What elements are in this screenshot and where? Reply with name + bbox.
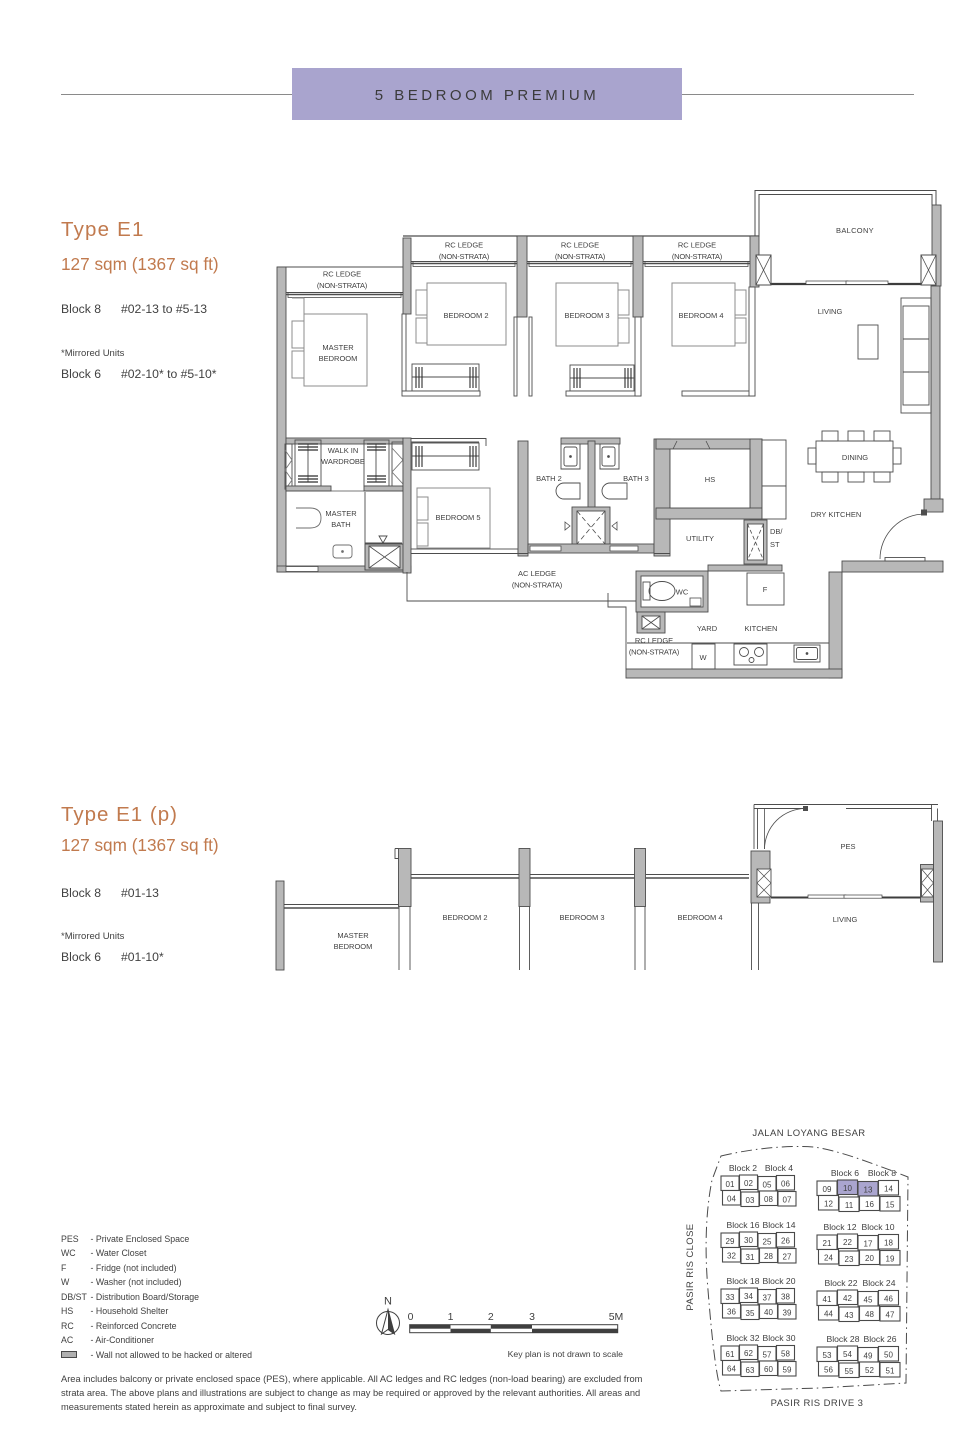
- svg-text:WC: WC: [676, 588, 689, 597]
- svg-text:02: 02: [744, 1179, 753, 1188]
- svg-text:28: 28: [764, 1252, 773, 1261]
- svg-text:RC LEDGE: RC LEDGE: [561, 241, 599, 250]
- svg-text:16: 16: [865, 1200, 874, 1209]
- svg-text:58: 58: [781, 1350, 790, 1359]
- svg-text:47: 47: [886, 1311, 895, 1320]
- svg-text:(NON-STRATA): (NON-STRATA): [512, 581, 563, 590]
- svg-text:52: 52: [865, 1366, 874, 1375]
- svg-text:RC LEDGE: RC LEDGE: [445, 241, 483, 250]
- svg-text:MASTER: MASTER: [322, 343, 354, 352]
- svg-text:01: 01: [726, 1180, 735, 1189]
- svg-text:31: 31: [746, 1253, 755, 1262]
- svg-text:61: 61: [726, 1350, 735, 1359]
- svg-text:Block 6: Block 6: [831, 1168, 859, 1178]
- svg-text:10: 10: [843, 1184, 852, 1193]
- svg-text:22: 22: [843, 1238, 852, 1247]
- svg-text:37: 37: [763, 1294, 772, 1303]
- svg-text:5M: 5M: [609, 1311, 624, 1323]
- svg-text:20: 20: [865, 1254, 874, 1263]
- svg-text:04: 04: [727, 1195, 736, 1204]
- svg-text:49: 49: [864, 1352, 873, 1361]
- svg-text:0: 0: [408, 1311, 414, 1323]
- svg-text:Block 28: Block 28: [827, 1334, 860, 1344]
- svg-text:2: 2: [488, 1311, 494, 1323]
- svg-text:(NON-STRATA): (NON-STRATA): [629, 648, 680, 657]
- svg-text:46: 46: [884, 1295, 893, 1304]
- svg-text:59: 59: [783, 1366, 792, 1375]
- svg-text:15: 15: [886, 1201, 895, 1210]
- svg-text:PES: PES: [840, 842, 855, 851]
- svg-text:BEDROOM 4: BEDROOM 4: [678, 311, 723, 320]
- svg-text:MASTER: MASTER: [337, 931, 369, 940]
- svg-text:DB/: DB/: [770, 527, 783, 536]
- svg-text:PASIR RIS DRIVE 3: PASIR RIS DRIVE 3: [771, 1398, 864, 1409]
- svg-text:56: 56: [824, 1366, 833, 1375]
- svg-text:05: 05: [763, 1181, 772, 1190]
- svg-text:57: 57: [763, 1351, 772, 1360]
- svg-text:63: 63: [746, 1366, 755, 1375]
- svg-text:42: 42: [843, 1294, 852, 1303]
- svg-text:51: 51: [886, 1367, 895, 1376]
- svg-text:AC LEDGE: AC LEDGE: [518, 569, 556, 578]
- svg-text:BEDROOM 4: BEDROOM 4: [677, 913, 722, 922]
- svg-text:1: 1: [448, 1311, 454, 1323]
- svg-text:55: 55: [845, 1367, 854, 1376]
- svg-text:(NON-STRATA): (NON-STRATA): [439, 252, 490, 261]
- svg-text:08: 08: [764, 1195, 773, 1204]
- svg-text:YARD: YARD: [697, 624, 718, 633]
- svg-text:JALAN LOYANG BESAR: JALAN LOYANG BESAR: [752, 1128, 865, 1139]
- svg-text:43: 43: [845, 1311, 854, 1320]
- svg-text:RC LEDGE: RC LEDGE: [635, 636, 673, 645]
- svg-text:BATH 2: BATH 2: [536, 474, 562, 483]
- svg-text:13: 13: [864, 1186, 873, 1195]
- svg-text:BALCONY: BALCONY: [836, 226, 874, 235]
- svg-text:39: 39: [783, 1309, 792, 1318]
- svg-text:F: F: [763, 585, 768, 594]
- svg-text:Block 12: Block 12: [824, 1222, 857, 1232]
- svg-text:WALK IN: WALK IN: [328, 446, 359, 455]
- svg-text:DINING: DINING: [842, 453, 868, 462]
- svg-text:Block 26: Block 26: [864, 1334, 897, 1344]
- svg-text:BEDROOM: BEDROOM: [319, 354, 358, 363]
- svg-text:BATH 3: BATH 3: [623, 474, 649, 483]
- svg-text:19: 19: [886, 1255, 895, 1264]
- svg-text:24: 24: [824, 1254, 833, 1263]
- svg-text:(NON-STRATA): (NON-STRATA): [672, 252, 723, 261]
- svg-text:Block 4: Block 4: [765, 1163, 793, 1173]
- svg-text:BEDROOM: BEDROOM: [334, 942, 373, 951]
- svg-text:60: 60: [764, 1365, 773, 1374]
- svg-text:KITCHEN: KITCHEN: [745, 624, 778, 633]
- svg-text:32: 32: [727, 1252, 736, 1261]
- svg-text:14: 14: [884, 1185, 893, 1194]
- svg-text:BEDROOM 2: BEDROOM 2: [443, 311, 488, 320]
- svg-text:17: 17: [864, 1240, 873, 1249]
- svg-text:54: 54: [843, 1350, 852, 1359]
- svg-text:50: 50: [884, 1351, 893, 1360]
- svg-text:40: 40: [764, 1308, 773, 1317]
- svg-text:38: 38: [781, 1293, 790, 1302]
- svg-text:33: 33: [726, 1293, 735, 1302]
- svg-text:HS: HS: [705, 475, 715, 484]
- svg-text:27: 27: [783, 1253, 792, 1262]
- svg-text:LIVING: LIVING: [818, 307, 843, 316]
- svg-text:48: 48: [865, 1310, 874, 1319]
- svg-text:36: 36: [727, 1308, 736, 1317]
- svg-text:30: 30: [744, 1236, 753, 1245]
- svg-text:03: 03: [746, 1196, 755, 1205]
- svg-text:ST: ST: [770, 540, 780, 549]
- svg-text:BEDROOM 5: BEDROOM 5: [435, 513, 480, 522]
- svg-text:(NON-STRATA): (NON-STRATA): [555, 252, 606, 261]
- svg-text:29: 29: [726, 1237, 735, 1246]
- svg-text:(NON-STRATA): (NON-STRATA): [317, 281, 368, 290]
- svg-text:N: N: [384, 1296, 392, 1308]
- svg-text:Block 24: Block 24: [863, 1278, 896, 1288]
- svg-text:11: 11: [845, 1201, 854, 1210]
- svg-text:LIVING: LIVING: [833, 915, 858, 924]
- svg-text:41: 41: [823, 1295, 832, 1304]
- svg-text:MASTER: MASTER: [325, 509, 357, 518]
- svg-text:RC LEDGE: RC LEDGE: [323, 270, 361, 279]
- svg-text:12: 12: [824, 1200, 833, 1209]
- svg-text:44: 44: [824, 1310, 833, 1319]
- svg-text:WARDROBE: WARDROBE: [321, 457, 365, 466]
- svg-text:Block 18: Block 18: [727, 1276, 760, 1286]
- svg-text:BEDROOM 2: BEDROOM 2: [442, 913, 487, 922]
- svg-text:BATH: BATH: [331, 520, 350, 529]
- svg-text:07: 07: [783, 1196, 792, 1205]
- svg-text:35: 35: [746, 1309, 755, 1318]
- svg-text:Block 10: Block 10: [862, 1222, 895, 1232]
- svg-text:BEDROOM 3: BEDROOM 3: [559, 913, 604, 922]
- svg-text:3: 3: [529, 1311, 535, 1323]
- svg-text:09: 09: [823, 1185, 832, 1194]
- svg-text:21: 21: [823, 1239, 832, 1248]
- svg-text:RC LEDGE: RC LEDGE: [678, 241, 716, 250]
- svg-text:Block 14: Block 14: [763, 1220, 796, 1230]
- svg-text:PASIR RIS CLOSE: PASIR RIS CLOSE: [685, 1223, 696, 1310]
- svg-text:Block 32: Block 32: [727, 1333, 760, 1343]
- svg-text:26: 26: [781, 1237, 790, 1246]
- svg-text:BEDROOM 3: BEDROOM 3: [564, 311, 609, 320]
- svg-text:34: 34: [744, 1292, 753, 1301]
- svg-text:45: 45: [864, 1296, 873, 1305]
- svg-text:DRY KITCHEN: DRY KITCHEN: [811, 510, 862, 519]
- svg-text:18: 18: [884, 1239, 893, 1248]
- svg-text:Block 2: Block 2: [729, 1163, 757, 1173]
- svg-text:Block 20: Block 20: [763, 1276, 796, 1286]
- svg-text:Block 16: Block 16: [727, 1220, 760, 1230]
- svg-text:Block 30: Block 30: [763, 1333, 796, 1343]
- svg-text:W: W: [699, 653, 707, 662]
- svg-text:53: 53: [823, 1351, 832, 1360]
- svg-text:64: 64: [727, 1365, 736, 1374]
- svg-text:25: 25: [763, 1238, 772, 1247]
- svg-text:62: 62: [744, 1349, 753, 1358]
- svg-text:23: 23: [845, 1255, 854, 1264]
- svg-text:Block 8: Block 8: [868, 1168, 896, 1178]
- svg-text:UTILITY: UTILITY: [686, 534, 714, 543]
- svg-text:Block 22: Block 22: [825, 1278, 858, 1288]
- svg-text:06: 06: [781, 1180, 790, 1189]
